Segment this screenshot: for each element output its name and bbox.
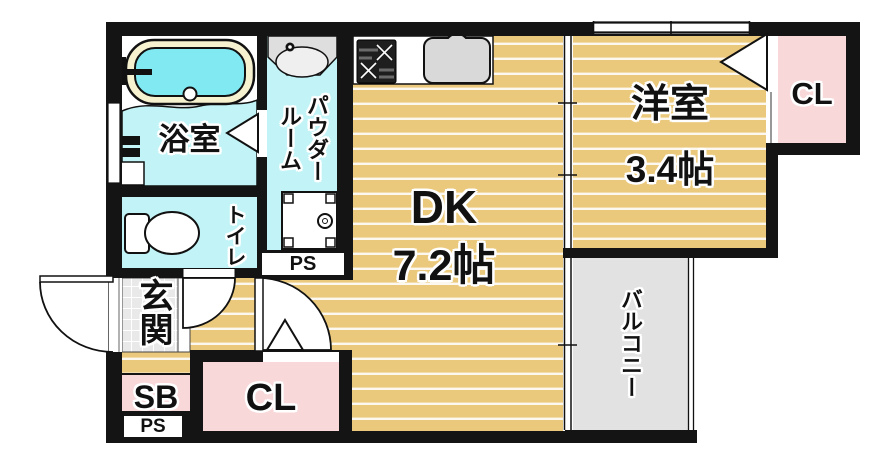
toilet-label: トイレ — [221, 199, 245, 271]
pipe-space-upper-label: PS — [262, 254, 344, 274]
window-top — [593, 21, 750, 34]
entrance-door-arc — [40, 276, 113, 352]
closet-bottom-label: CL — [203, 379, 339, 418]
bath-label: 浴室 — [122, 124, 257, 156]
washer-pan-icon — [282, 192, 337, 249]
closet-bottom-opening — [263, 352, 339, 362]
balcony-rail — [689, 258, 694, 430]
stove-icon — [357, 40, 396, 83]
shoe-box-label: SB — [122, 381, 190, 414]
toilet-icon — [125, 212, 199, 254]
powder-room-label: パウダールーム — [272, 90, 330, 186]
pipe-space-lower-label: PS — [124, 417, 182, 436]
dk-label: DK — [344, 184, 544, 231]
western-room-label: 洋室 — [570, 85, 770, 125]
entrance-opening — [106, 278, 122, 352]
bathtub-icon — [116, 40, 254, 104]
western-room-size-label: 3.4帖 — [570, 151, 770, 189]
dk-size-label: 7.2帖 — [344, 245, 544, 289]
sink-icon — [424, 34, 490, 83]
entrance-label: 玄関 — [130, 273, 170, 351]
bathroom-window — [108, 103, 120, 183]
closet-top-label: CL — [778, 78, 846, 110]
floor-plan: 浴室 パウダールーム トイレ 玄関 DK 7.2帖 洋室 3.4帖 CL CL … — [0, 0, 896, 464]
balcony-label: バルコニー — [617, 268, 643, 418]
